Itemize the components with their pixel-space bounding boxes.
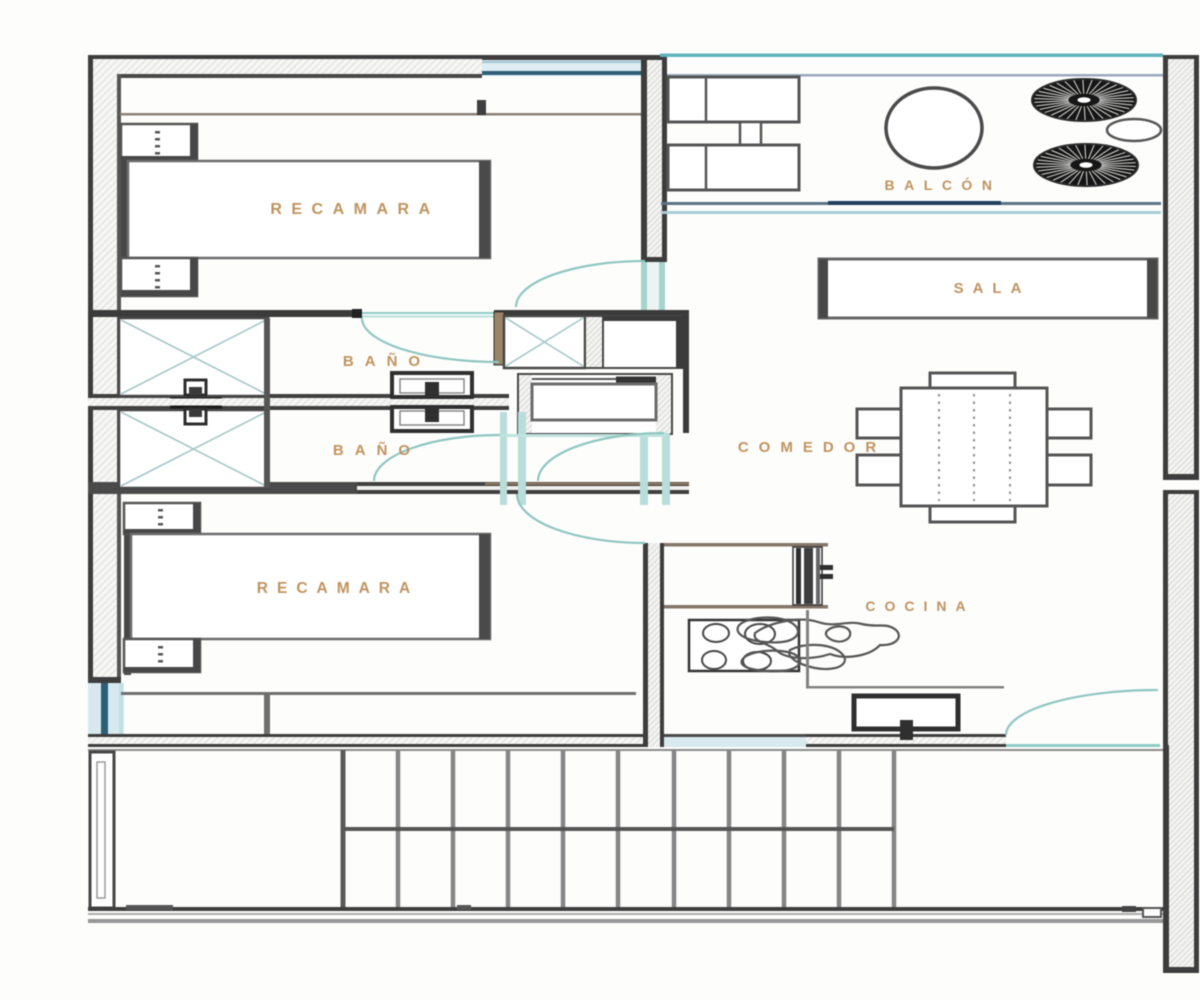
svg-text:RECAMARA: RECAMARA — [270, 201, 439, 218]
svg-text:RECAMARA: RECAMARA — [257, 580, 419, 597]
svg-text:BAÑO: BAÑO — [343, 352, 431, 370]
svg-text:BALCÓN: BALCÓN — [885, 176, 1002, 193]
svg-text:SALA: SALA — [954, 280, 1031, 297]
svg-text:COCINA: COCINA — [865, 598, 974, 614]
svg-text:COMEDOR: COMEDOR — [738, 439, 886, 456]
svg-text:BAÑO: BAÑO — [333, 441, 421, 459]
